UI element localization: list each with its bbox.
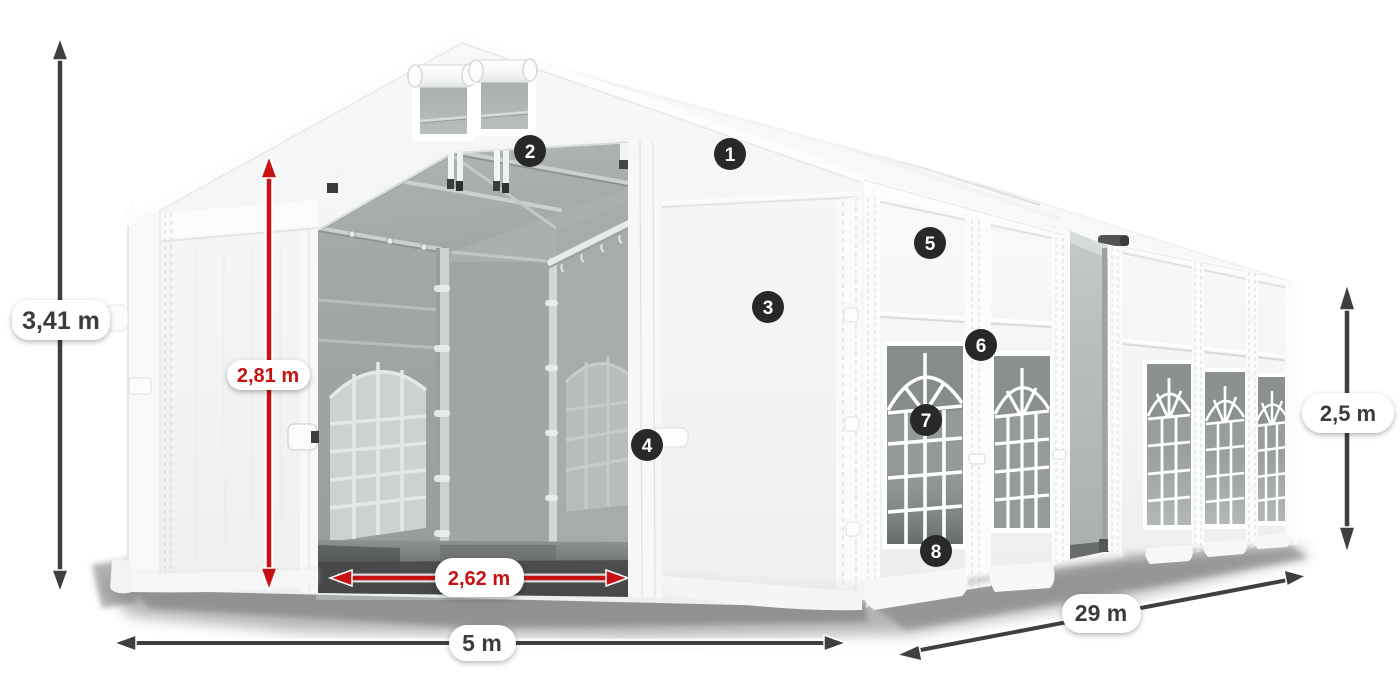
- svg-text:6: 6: [976, 336, 987, 357]
- svg-text:3,41 m: 3,41 m: [22, 307, 100, 335]
- svg-text:2,81 m: 2,81 m: [237, 365, 299, 387]
- svg-text:2: 2: [525, 142, 536, 163]
- svg-text:2,62 m: 2,62 m: [448, 568, 510, 590]
- svg-text:3: 3: [763, 298, 774, 319]
- svg-text:29 m: 29 m: [1075, 600, 1127, 626]
- svg-text:2,5 m: 2,5 m: [1320, 401, 1376, 426]
- svg-text:4: 4: [642, 436, 653, 457]
- svg-text:5 m: 5 m: [462, 630, 502, 656]
- svg-text:7: 7: [921, 411, 932, 432]
- svg-text:8: 8: [931, 542, 942, 563]
- svg-text:1: 1: [725, 145, 736, 166]
- svg-text:5: 5: [925, 234, 936, 255]
